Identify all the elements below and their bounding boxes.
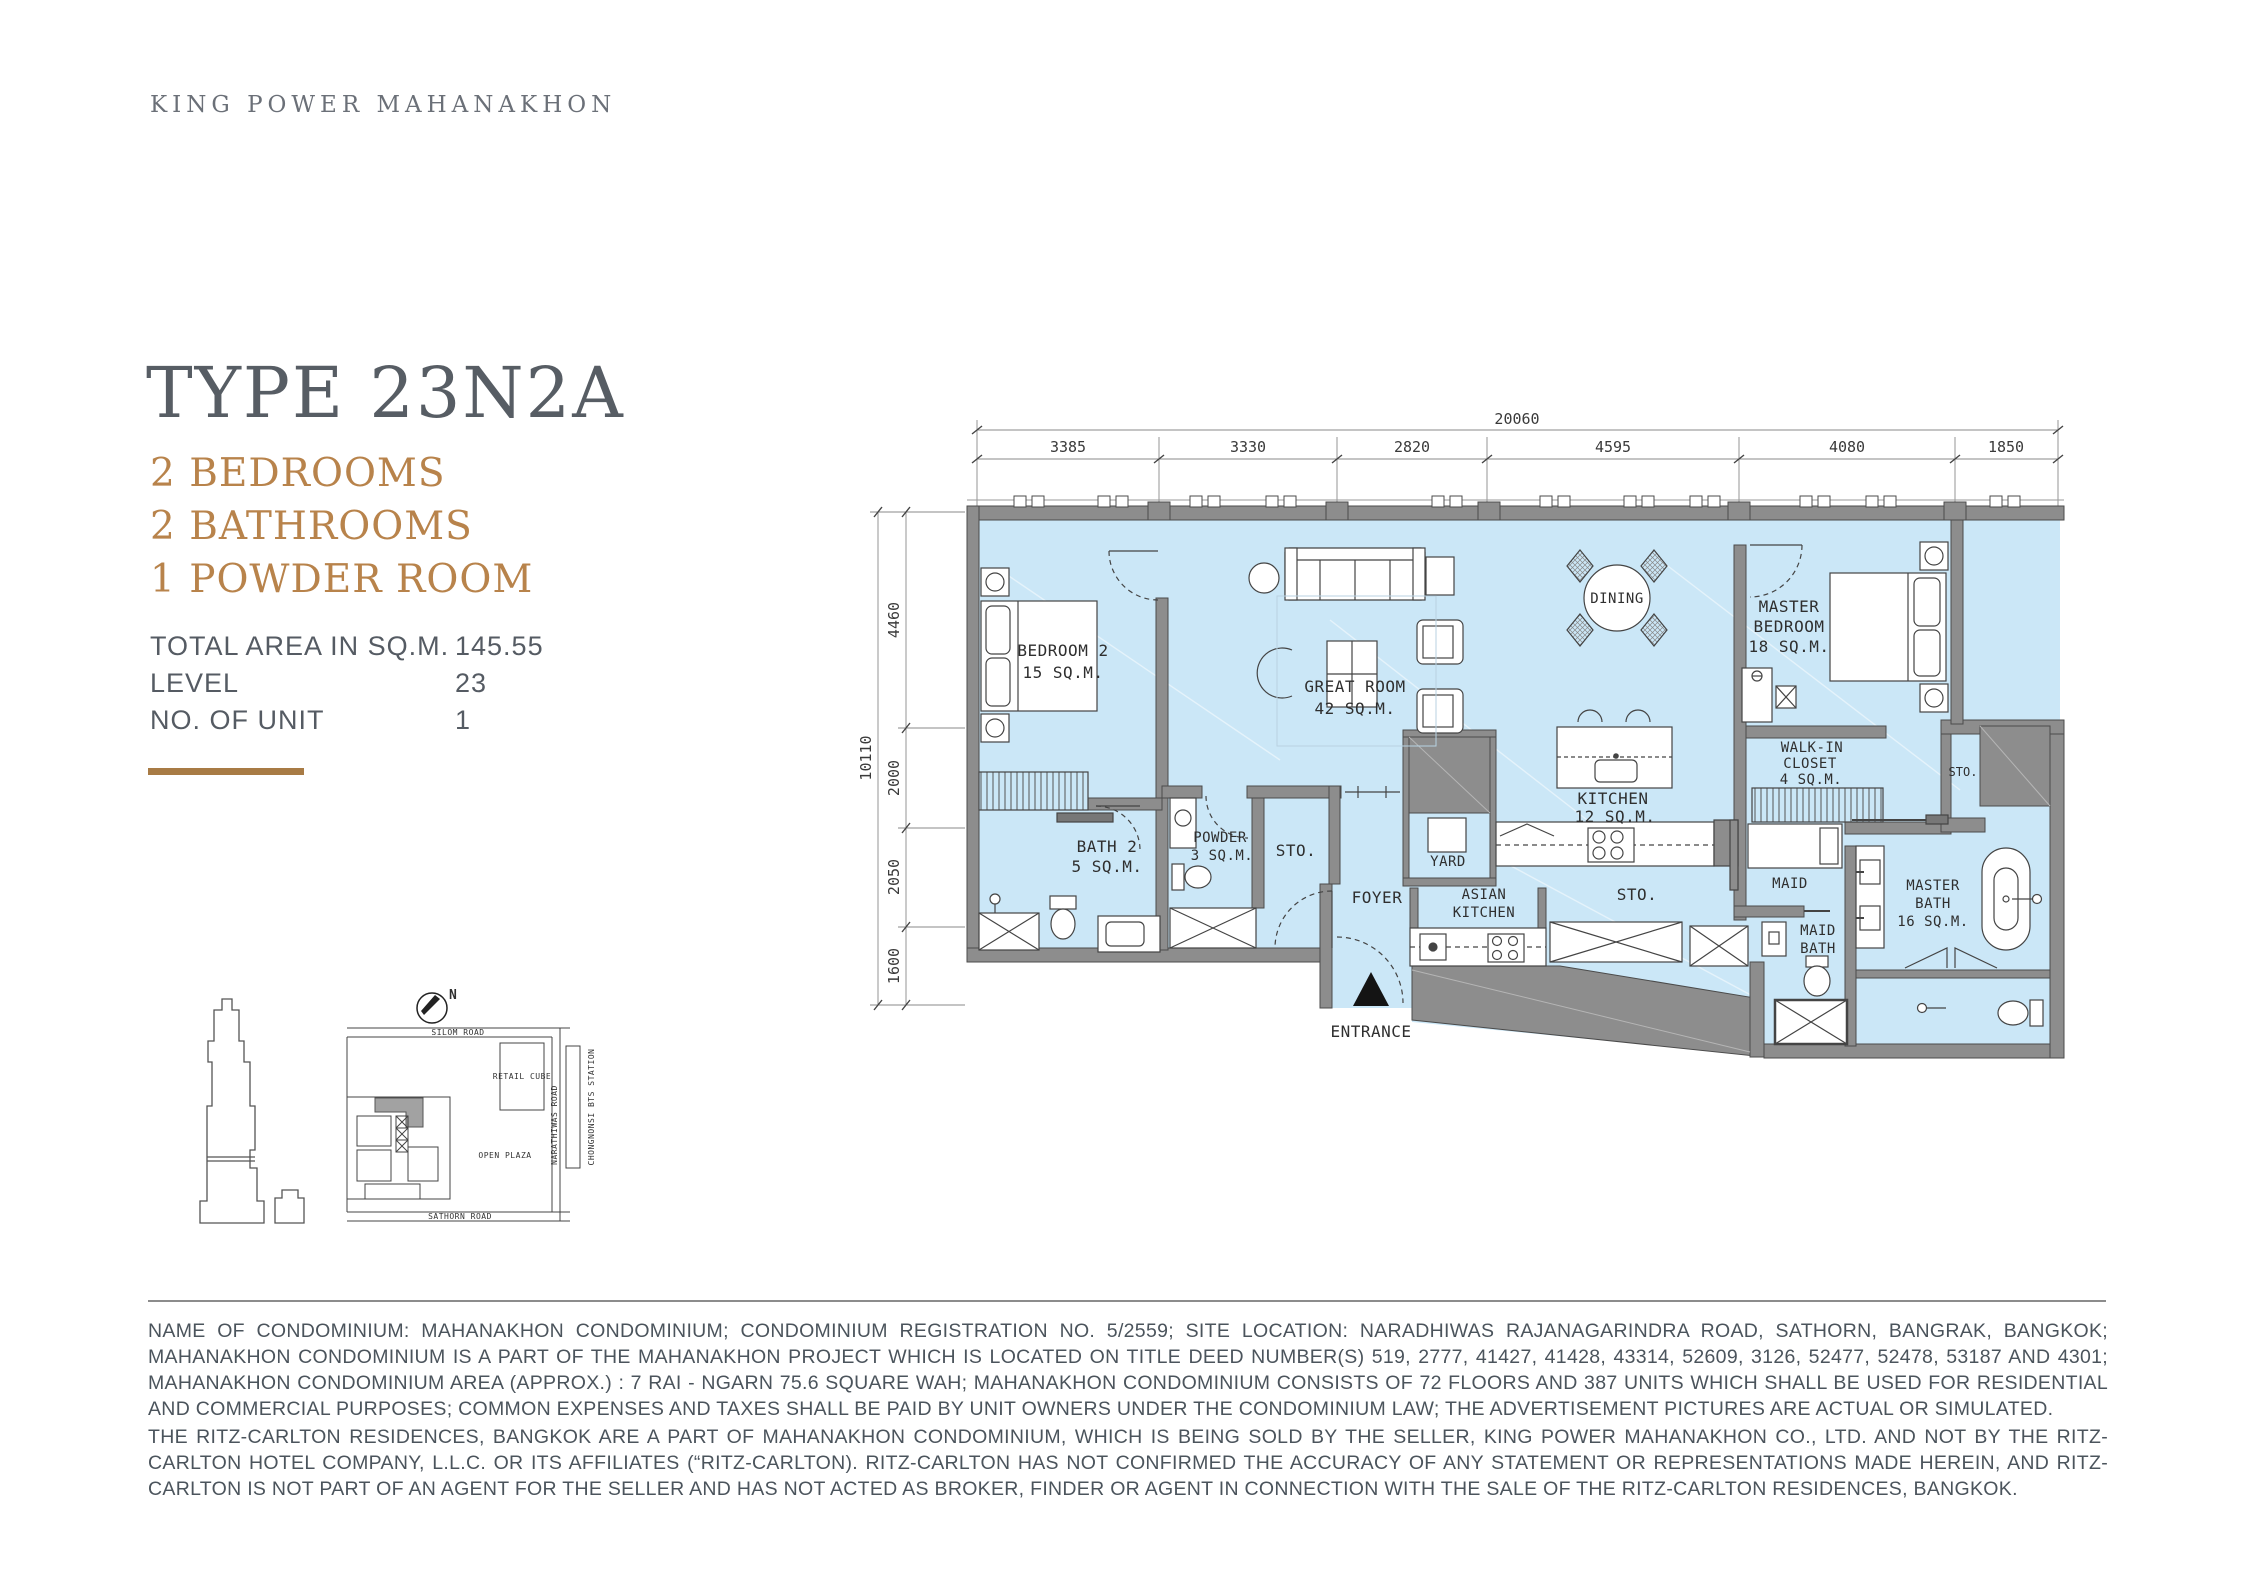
label-walkin-area: 4 SQ.M. — [1780, 772, 1843, 788]
label-master-2: BEDROOM — [1754, 617, 1825, 636]
dim-seg-3: 2820 — [1394, 438, 1430, 456]
gold-rule — [148, 768, 304, 775]
north-label: N — [449, 988, 457, 1003]
dim-vseg-2: 2000 — [885, 760, 903, 796]
storage-crates — [1550, 922, 1748, 966]
label-powder-area: 3 SQ.M. — [1191, 848, 1254, 864]
label-great-room: GREAT ROOM — [1304, 677, 1405, 696]
label-powder: POWDER — [1193, 830, 1247, 846]
label-kitchen-area: 12 SQ.M. — [1574, 807, 1655, 826]
asian-kitchen-counter — [1410, 928, 1546, 966]
site-plan: N SILOM ROAD SATHORN ROAD NARATHIWAS ROA… — [180, 980, 640, 1270]
label-masterbath-1: MASTER — [1906, 878, 1960, 894]
side-table — [1249, 563, 1279, 593]
dim-vseg-1: 4460 — [885, 602, 903, 638]
feature-bedrooms: 2 BEDROOMS — [150, 447, 533, 500]
unit-features: 2 BEDROOMS 2 BATHROOMS 1 POWDER ROOM — [150, 447, 533, 606]
page-title: TYPE 23N2A — [146, 352, 625, 434]
dim-seg-4: 4595 — [1595, 438, 1631, 456]
label-narathiwas-road: NARATHIWAS ROAD — [550, 1085, 559, 1165]
site-labels: SILOM ROAD SATHORN ROAD NARATHIWAS ROAD … — [428, 1028, 596, 1221]
unit-specs: TOTAL AREA IN SQ.M. 145.55 LEVEL 23 NO. … — [150, 628, 544, 739]
north-arrow-icon: N — [417, 988, 457, 1023]
label-asian-1: ASIAN — [1462, 887, 1507, 903]
label-master-area: 18 SQ.M. — [1748, 637, 1829, 656]
spec-total-area-value: 145.55 — [455, 628, 544, 665]
label-bath2: BATH 2 — [1077, 837, 1138, 856]
disclaimer-paragraph-2: THE RITZ-CARLTON RESIDENCES, BANGKOK ARE… — [148, 1424, 2108, 1502]
site-map — [347, 1028, 580, 1221]
spec-level-value: 23 — [455, 665, 487, 702]
label-masterbath-area: 16 SQ.M. — [1897, 914, 1968, 930]
label-open-plaza: OPEN PLAZA — [478, 1151, 531, 1160]
label-maidbath-2: BATH — [1800, 941, 1836, 957]
label-bedroom2-area: 15 SQ.M. — [1022, 663, 1103, 682]
label-asian-2: KITCHEN — [1453, 905, 1516, 921]
label-walkin-2: CLOSET — [1783, 756, 1837, 772]
wardrobe-bedroom2 — [979, 772, 1088, 810]
spec-level: LEVEL 23 — [150, 665, 544, 702]
label-sto-corridor: STO. — [1617, 885, 1658, 904]
spec-total-area: TOTAL AREA IN SQ.M. 145.55 — [150, 628, 544, 665]
label-bath2-area: 5 SQ.M. — [1072, 857, 1143, 876]
floor-plan: 20060 3385 3330 2820 4595 4080 1850 1011… — [850, 395, 2170, 1085]
disclaimer-paragraph-1: NAME OF CONDOMINIUM: MAHANAKHON CONDOMIN… — [148, 1318, 2108, 1422]
feature-bathrooms: 2 BATHROOMS — [150, 500, 533, 553]
spec-units: NO. OF UNIT 1 — [150, 702, 544, 739]
label-master-1: MASTER — [1759, 597, 1820, 616]
dim-seg-2: 3330 — [1230, 438, 1266, 456]
dim-vseg-3: 2050 — [885, 859, 903, 895]
label-retail-cube: RETAIL CUBE — [493, 1072, 551, 1081]
tower-elevation — [200, 999, 304, 1223]
brochure-page: KING POWER MAHANAKHON TYPE 23N2A 2 BEDRO… — [0, 0, 2245, 1587]
sofa — [1285, 548, 1425, 600]
feature-powder-room: 1 POWDER ROOM — [150, 553, 533, 606]
dim-overall-height: 10110 — [857, 735, 875, 780]
label-bts-station: CHONGNONSI BTS STATION — [587, 1049, 596, 1166]
closet-hatch — [1752, 788, 1883, 822]
dim-seg-5: 4080 — [1829, 438, 1865, 456]
label-sto-mid: STO. — [1276, 841, 1317, 860]
label-bedroom2: BEDROOM 2 — [1017, 641, 1108, 660]
label-maidbath-1: MAID — [1800, 923, 1836, 939]
label-kitchen: KITCHEN — [1578, 789, 1649, 808]
spec-total-area-label: TOTAL AREA IN SQ.M. — [150, 628, 455, 665]
shelf-bedroom2 — [1057, 813, 1113, 822]
label-sto-right: STO. — [1949, 765, 1978, 779]
label-silom-road: SILOM ROAD — [431, 1028, 484, 1037]
label-sathorn-road: SATHORN ROAD — [428, 1212, 492, 1221]
bed-master — [1830, 573, 1946, 681]
dim-vseg-4: 1600 — [885, 948, 903, 984]
spec-level-label: LEVEL — [150, 665, 455, 702]
dim-overall-width: 20060 — [1494, 410, 1539, 428]
label-great-room-area: 42 SQ.M. — [1314, 699, 1395, 718]
footer-divider — [148, 1300, 2106, 1302]
label-yard: YARD — [1430, 854, 1466, 870]
dim-seg-1: 3385 — [1050, 438, 1086, 456]
brand-logo: KING POWER MAHANAKHON — [150, 92, 616, 118]
label-entrance: ENTRANCE — [1330, 1022, 1411, 1041]
label-masterbath-2: BATH — [1915, 896, 1951, 912]
dim-seg-6: 1850 — [1988, 438, 2024, 456]
spec-units-value: 1 — [455, 702, 471, 739]
label-dining: DINING — [1590, 591, 1644, 607]
label-foyer: FOYER — [1352, 888, 1403, 907]
label-walkin-1: WALK-IN — [1781, 740, 1844, 756]
maid-bed — [1748, 824, 1842, 868]
yard-floor-drain — [1428, 818, 1466, 852]
spec-units-label: NO. OF UNIT — [150, 702, 455, 739]
label-maid: MAID — [1772, 876, 1808, 892]
